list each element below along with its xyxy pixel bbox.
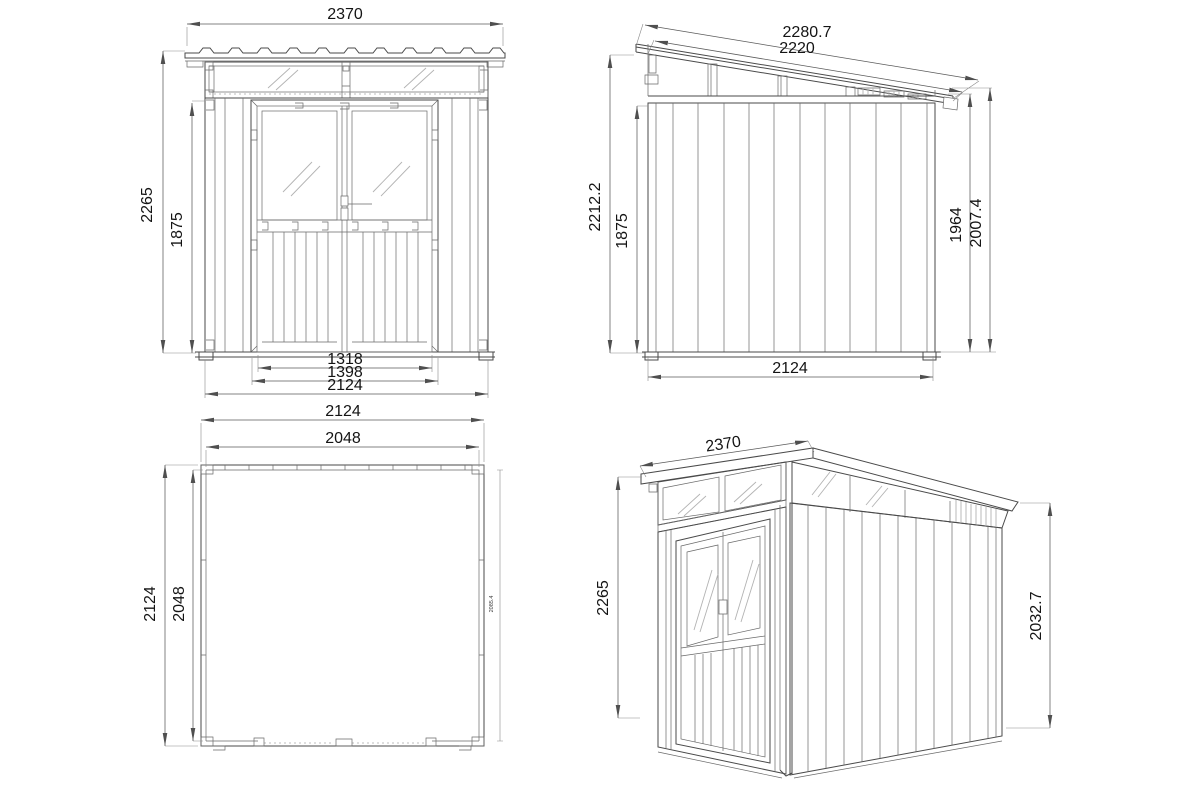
dim-side-wall-height: 1875 <box>614 106 637 353</box>
dim-front-wall-height: 1875 <box>169 103 192 353</box>
dim-side-high-height: 2212.2 <box>587 55 610 353</box>
dim-label: 2085.4 <box>489 596 495 613</box>
front-wall <box>205 98 488 352</box>
front-door-handle <box>341 196 372 220</box>
front-door-slats <box>262 232 427 342</box>
dim-side-roof-inner: 2220 <box>655 40 962 92</box>
plan-wall-inner <box>206 470 479 741</box>
dim-plan-inner-width: 2048 <box>206 430 479 447</box>
dim-label: 1964 <box>948 207 965 243</box>
dim-front-base-width: 2124 <box>205 377 488 394</box>
side-wall <box>648 103 935 352</box>
persp-front-clerestory-hatch <box>678 482 762 516</box>
persp-door-glass <box>687 536 760 646</box>
dim-label: 2124 <box>327 377 363 394</box>
dim-label: 2048 <box>325 430 361 447</box>
front-roof-corrugation <box>185 48 505 58</box>
front-door-crossbar <box>257 220 432 232</box>
side-roof-end-cap <box>943 97 958 110</box>
dim-label: 2124 <box>325 403 361 420</box>
front-door-frame-inner <box>257 106 432 352</box>
plan-corner-blocks <box>201 465 484 746</box>
front-clerestory-glass-hatch <box>268 68 434 90</box>
side-roof-left-bracket <box>645 55 658 84</box>
dim-label: 1875 <box>169 212 186 248</box>
dim-persp-rear-height: 2032.7 <box>1028 503 1050 728</box>
dim-side-base-depth: 2124 <box>648 360 933 377</box>
dim-label: 1875 <box>614 213 631 249</box>
persp-base-edges <box>658 462 1002 778</box>
front-clerestory-glass-frame <box>209 66 484 92</box>
dim-plan-inner-detail: 2085.4 <box>489 470 503 741</box>
shed-technical-drawing: 2370 2265 1875 1318 1398 2124 <box>0 0 1200 800</box>
dim-label: 2212.2 <box>587 182 604 231</box>
front-door-hinges <box>251 103 438 250</box>
dim-label: 2280.7 <box>783 24 832 41</box>
perspective-view: 2370 2265 2032.7 <box>595 433 1050 778</box>
dim-label: 2124 <box>772 360 808 377</box>
dim-label: 2265 <box>139 187 156 223</box>
persp-front-wall <box>658 507 786 774</box>
persp-door-assembly <box>676 519 770 763</box>
persp-door-handle <box>719 600 727 614</box>
plan-door-blocks <box>213 738 471 750</box>
persp-door-slats <box>695 645 758 756</box>
side-corner-posts <box>648 44 935 352</box>
persp-roof-right-fascia <box>813 448 1018 511</box>
dim-side-low-height: 2007.4 <box>968 88 990 352</box>
persp-door-glass-hatch <box>694 560 759 632</box>
front-corner-posts <box>206 98 487 352</box>
front-clerestory-end-brackets <box>205 62 488 98</box>
front-elevation-view: 2370 2265 1875 1318 1398 2124 <box>139 6 505 398</box>
dim-front-overall-height: 2265 <box>139 51 163 353</box>
dim-plan-outer-depth: 2124 <box>142 465 165 746</box>
front-door-corner-chamfers <box>251 100 438 352</box>
dim-label: 2370 <box>327 6 363 23</box>
dim-label: 2265 <box>595 580 612 616</box>
dim-label: 2048 <box>171 586 188 622</box>
side-elevation-view: 2280.7 2220 2212.2 1875 1964 2007.4 2124 <box>587 24 996 381</box>
plan-wall-outer <box>201 465 484 746</box>
dim-label: 2007.4 <box>968 198 985 247</box>
dim-plan-outer-width: 2124 <box>201 403 484 420</box>
persp-front-top-rail <box>658 500 786 532</box>
persp-side-panel-lines <box>808 505 996 772</box>
side-roof-posts <box>708 64 855 96</box>
dim-side-low-inner-height: 1964 <box>948 94 970 352</box>
side-extension-lines <box>610 24 996 381</box>
dim-front-roof-width: 2370 <box>187 6 503 24</box>
drawing-sheet: 2370 2265 1875 1318 1398 2124 <box>0 0 1200 800</box>
side-base <box>642 352 941 360</box>
side-wall-panel-lines <box>673 103 901 352</box>
dim-label: 2220 <box>779 40 815 57</box>
dim-label: 2032.7 <box>1028 591 1045 640</box>
front-door-frame-outer <box>251 100 438 352</box>
front-clerestory-band <box>205 62 488 98</box>
plan-panel-ticks <box>201 465 484 655</box>
dim-plan-inner-depth: 2048 <box>171 470 193 741</box>
front-door-center-stiles <box>340 103 349 352</box>
front-door-glass-left <box>262 111 337 220</box>
front-door-glass-hatch <box>283 162 410 196</box>
front-clerestory-mullion <box>342 62 350 98</box>
dim-persp-front-height: 2265 <box>595 477 618 718</box>
dim-label: 2370 <box>704 433 742 455</box>
persp-roof-left-bracket <box>649 484 657 492</box>
floor-plan-view: 2085.4 2124 2048 2124 2048 <box>142 403 503 750</box>
dim-label: 2124 <box>142 586 159 622</box>
